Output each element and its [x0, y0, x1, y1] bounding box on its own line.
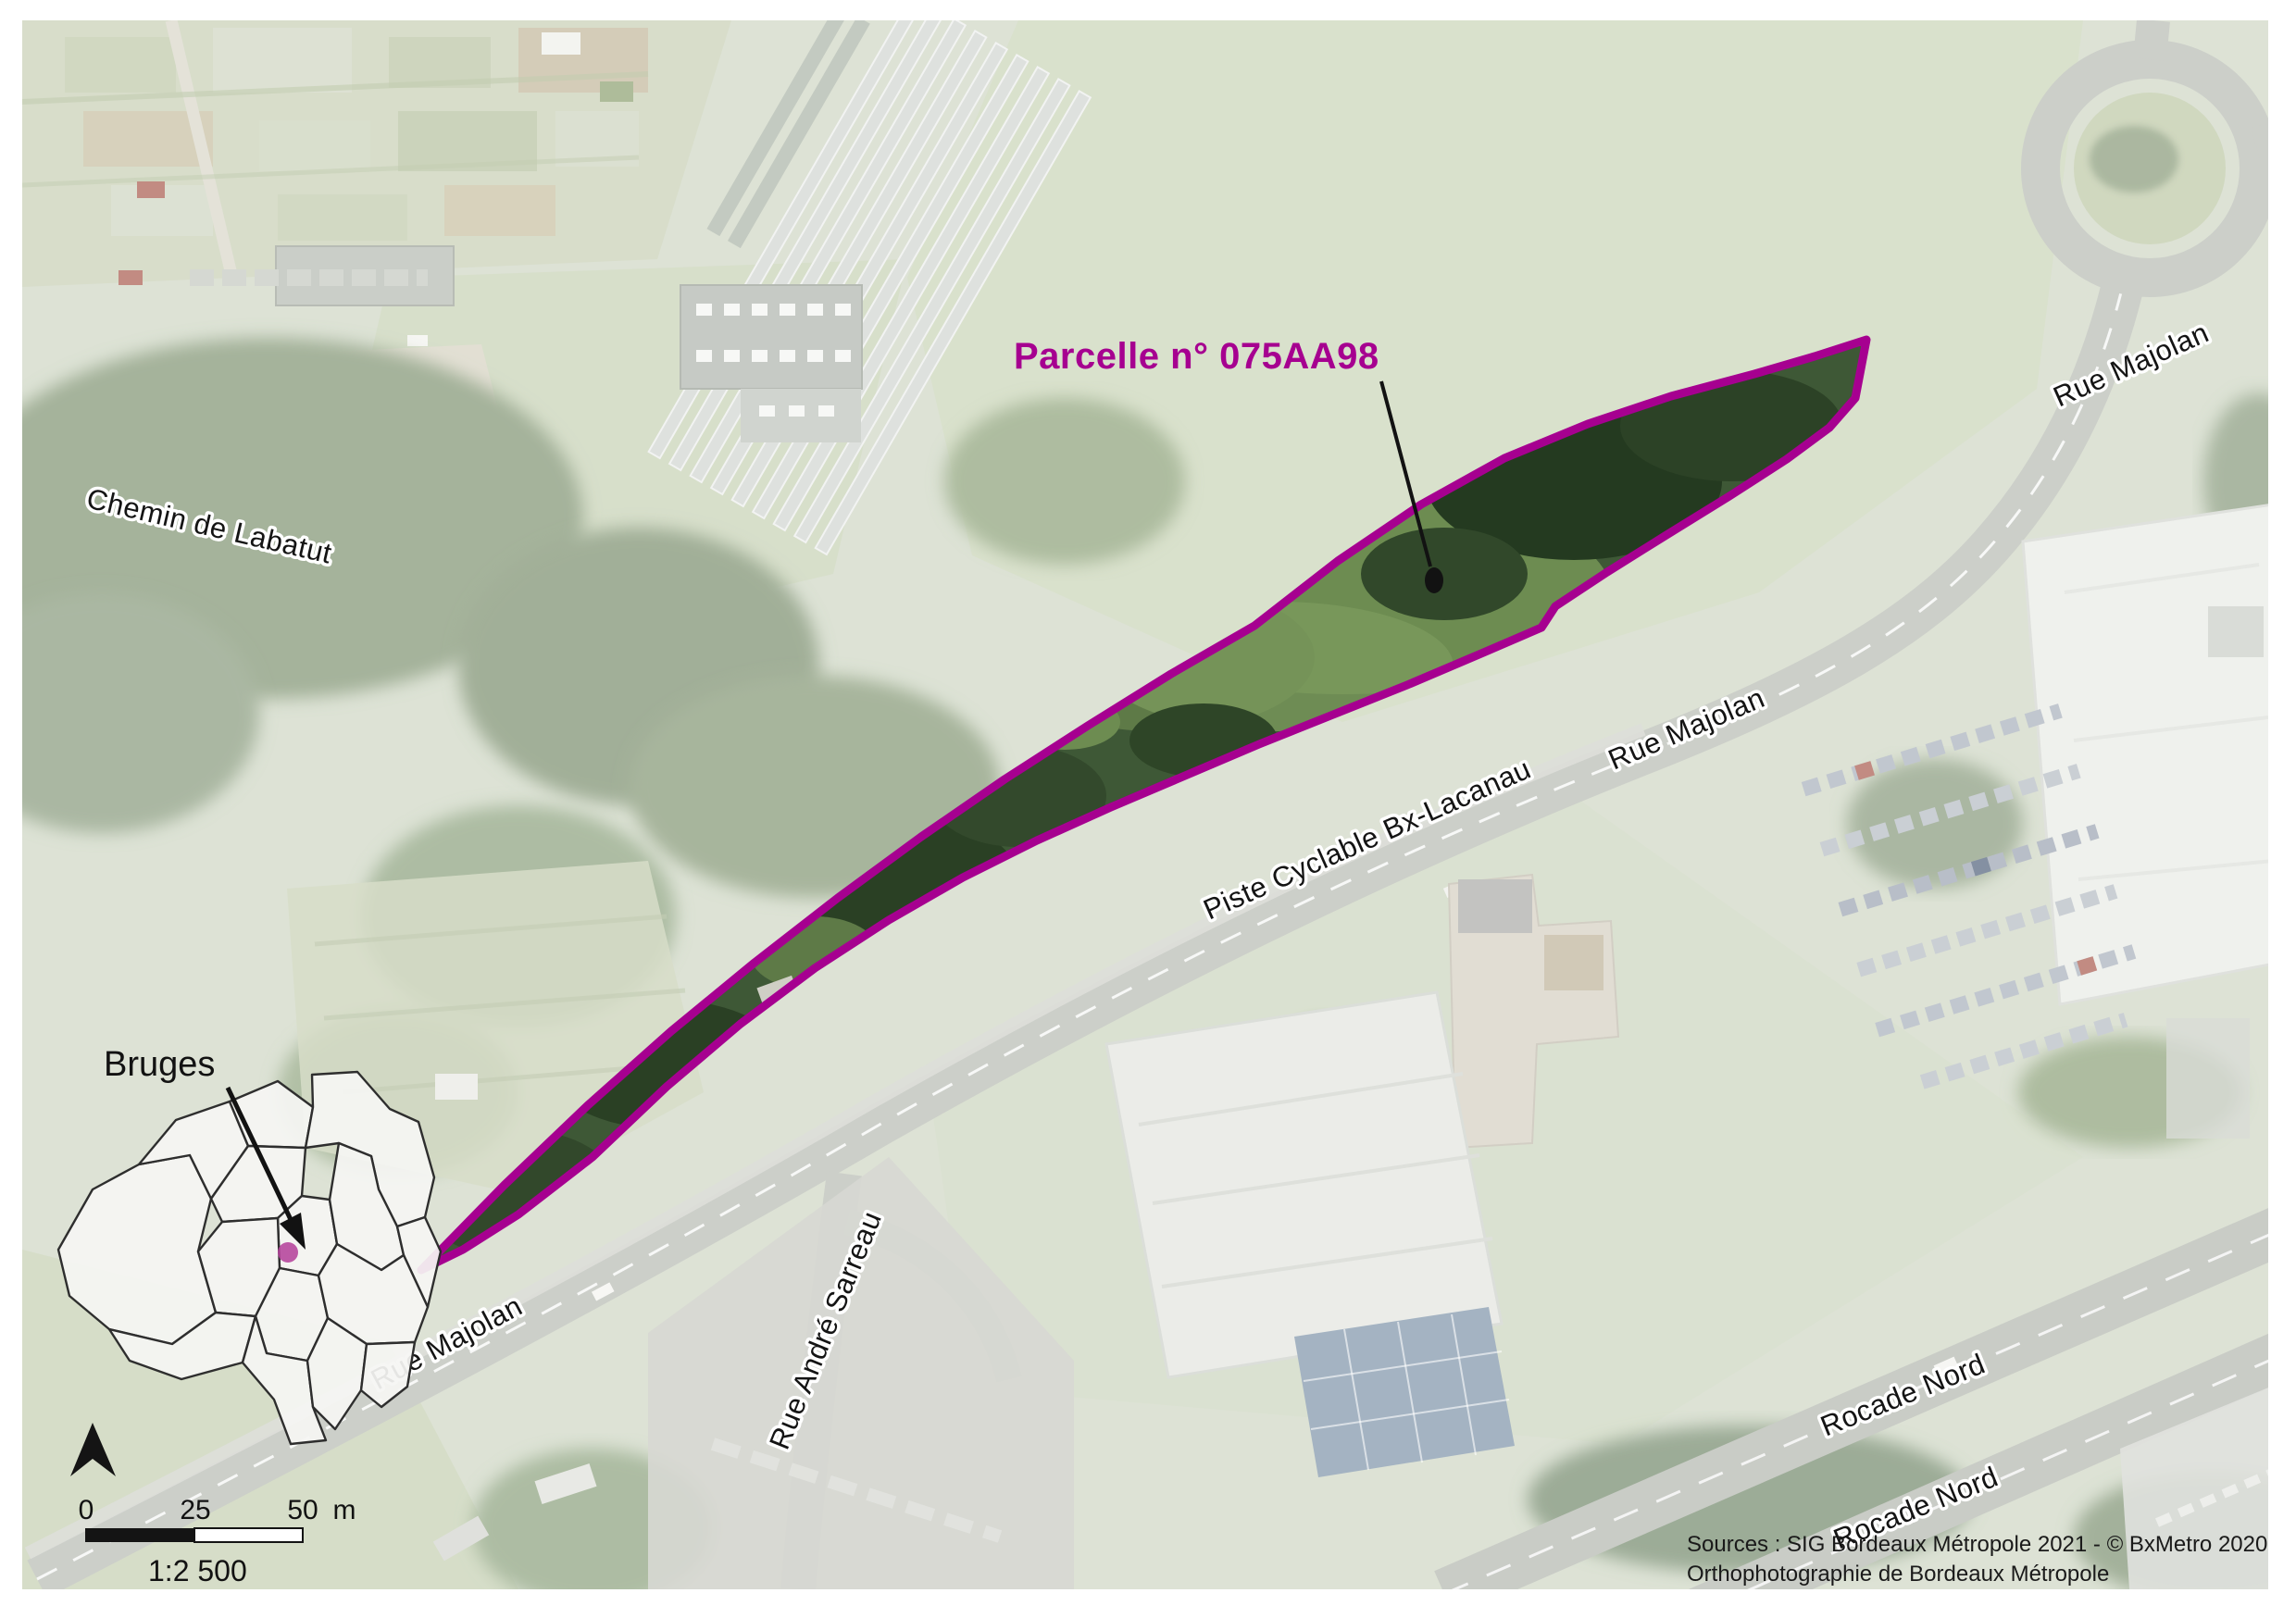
map-canvas: Chemin de Labatut Rue Majolan Rue Majola…: [0, 0, 2296, 1618]
inset-label-bruges: Bruges: [104, 1045, 215, 1084]
scale-unit: m: [333, 1495, 356, 1525]
scale-bar-black-segment: [85, 1528, 194, 1542]
parcel-leader-dot: [1425, 567, 1443, 593]
scale-tick-50: 50: [287, 1495, 318, 1525]
scale-ratio-text: 1:2 500: [148, 1554, 247, 1587]
parcel-label-text: Parcelle n° 075AA98: [1014, 336, 1379, 377]
scale-tick-25: 25: [180, 1495, 210, 1525]
attribution-line-2: Orthophotographie de Bordeaux Métropole: [1687, 1562, 2109, 1587]
attribution-line-1: Sources : SIG Bordeaux Métropole 2021 - …: [1687, 1532, 2274, 1557]
scale-tick-0: 0: [79, 1495, 94, 1525]
map-page: Chemin de Labatut Rue Majolan Rue Majola…: [0, 0, 2296, 1618]
scale-bar-white-segment: [194, 1528, 303, 1542]
inset-location-dot: [278, 1242, 298, 1263]
